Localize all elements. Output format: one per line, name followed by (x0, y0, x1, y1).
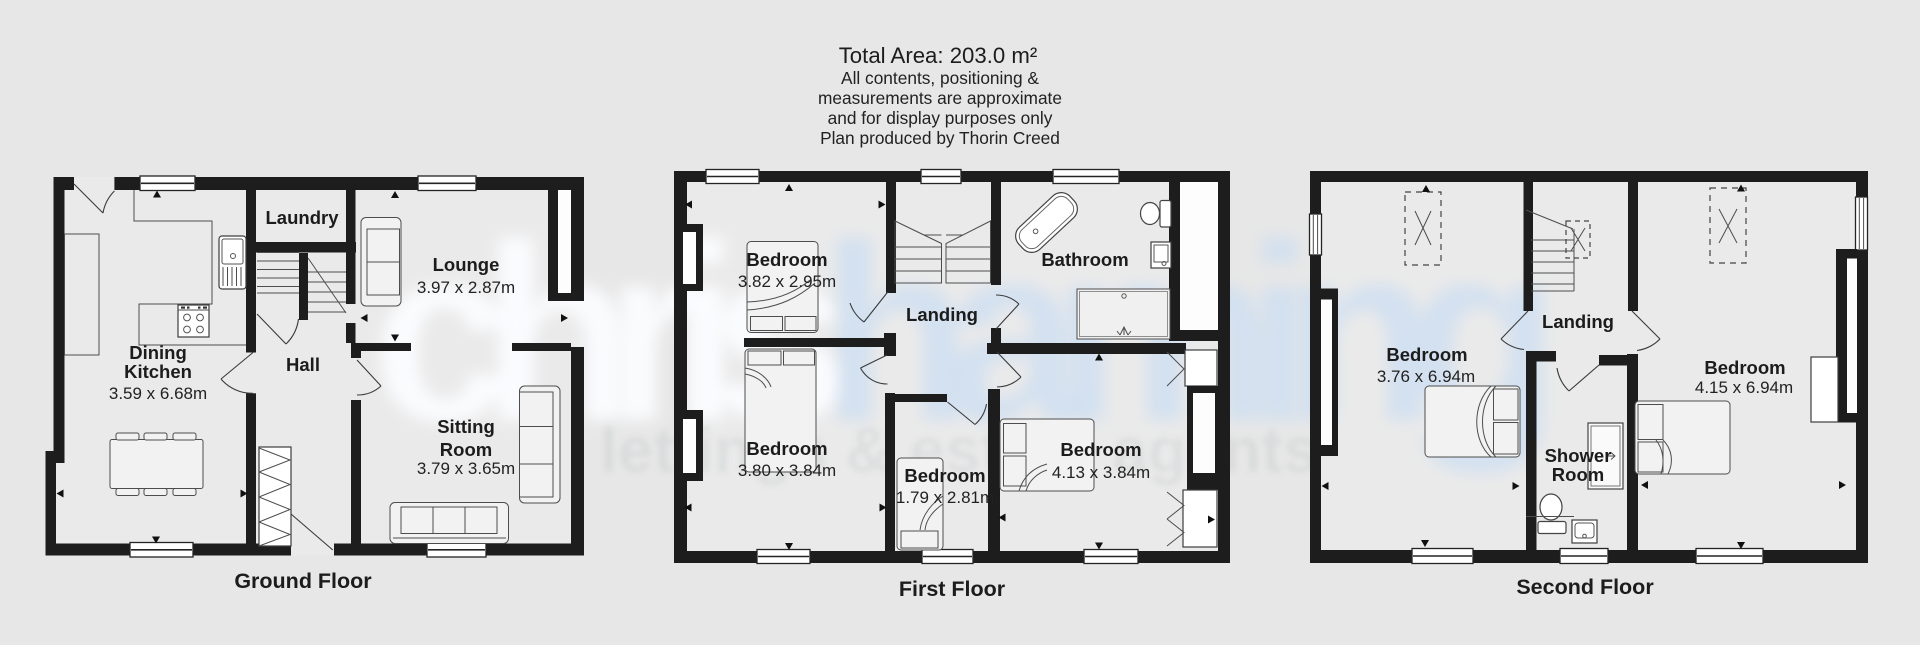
svg-text:Hall: Hall (286, 354, 320, 375)
svg-text:Room: Room (440, 439, 492, 460)
svg-text:and for display purposes only: and for display purposes only (828, 108, 1053, 128)
svg-text:Total Area: 203.0 m²: Total Area: 203.0 m² (839, 43, 1038, 68)
svg-text:Bedroom: Bedroom (1386, 344, 1467, 365)
svg-text:3.97 x 2.87m: 3.97 x 2.87m (417, 278, 515, 297)
svg-text:Sitting: Sitting (437, 416, 495, 437)
svg-text:Second Floor: Second Floor (1516, 575, 1654, 599)
svg-text:Ground Floor: Ground Floor (234, 569, 372, 593)
svg-text:Bedroom: Bedroom (1704, 357, 1785, 378)
svg-text:Kitchen: Kitchen (124, 361, 192, 382)
svg-text:Dining: Dining (129, 342, 187, 363)
svg-text:Landing: Landing (1542, 311, 1614, 332)
svg-text:Lounge: Lounge (433, 254, 500, 275)
svg-text:measurements are approximate: measurements are approximate (818, 88, 1062, 108)
svg-text:3.59 x 6.68m: 3.59 x 6.68m (109, 384, 207, 403)
svg-text:4.15 x 6.94m: 4.15 x 6.94m (1695, 378, 1793, 397)
svg-text:Bedroom: Bedroom (746, 438, 827, 459)
svg-text:All contents, positioning &: All contents, positioning & (841, 68, 1039, 88)
svg-text:3.82 x 2.95m: 3.82 x 2.95m (738, 272, 836, 291)
svg-text:1.79 x 2.81m: 1.79 x 2.81m (896, 488, 994, 507)
svg-text:Landing: Landing (906, 304, 978, 325)
svg-text:Laundry: Laundry (266, 207, 340, 228)
svg-text:4.13 x 3.84m: 4.13 x 3.84m (1052, 463, 1150, 482)
svg-text:Bathroom: Bathroom (1041, 249, 1128, 270)
svg-text:3.80 x 3.84m: 3.80 x 3.84m (738, 461, 836, 480)
svg-text:Plan produced by Thorin Creed: Plan produced by Thorin Creed (820, 128, 1060, 148)
svg-text:Bedroom: Bedroom (1060, 439, 1141, 460)
svg-text:Shower: Shower (1545, 445, 1612, 466)
svg-text:3.79 x 3.65m: 3.79 x 3.65m (417, 459, 515, 478)
svg-text:Bedroom: Bedroom (904, 465, 985, 486)
svg-text:3.76 x 6.94m: 3.76 x 6.94m (1377, 367, 1475, 386)
svg-text:Bedroom: Bedroom (746, 249, 827, 270)
svg-text:First Floor: First Floor (899, 577, 1006, 601)
svg-text:Room: Room (1552, 464, 1604, 485)
